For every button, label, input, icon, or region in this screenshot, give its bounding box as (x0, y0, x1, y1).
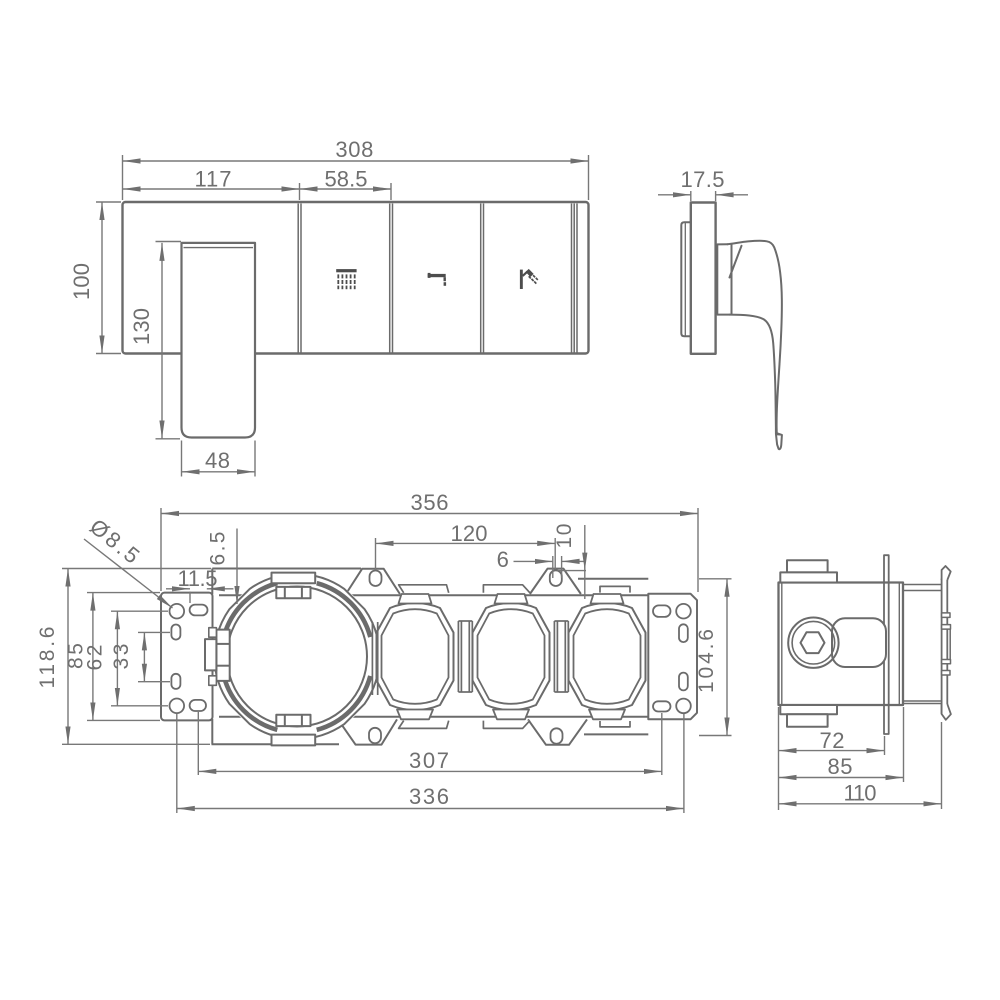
svg-text:336: 336 (409, 784, 449, 809)
svg-text:17.5: 17.5 (681, 167, 725, 192)
svg-text:Ø8.5: Ø8.5 (85, 514, 144, 569)
svg-text:118.6: 118.6 (36, 627, 59, 689)
svg-text:10: 10 (553, 524, 576, 549)
svg-text:11.5: 11.5 (178, 566, 218, 591)
svg-text:356: 356 (411, 490, 449, 515)
svg-text:117: 117 (195, 167, 232, 192)
svg-text:120: 120 (451, 521, 488, 546)
svg-text:6: 6 (497, 547, 509, 572)
svg-text:100: 100 (69, 263, 94, 300)
svg-text:85: 85 (828, 754, 853, 779)
svg-text:6.5: 6.5 (207, 532, 230, 566)
svg-text:104.6: 104.6 (695, 629, 718, 693)
svg-text:308: 308 (335, 137, 373, 162)
svg-text:307: 307 (409, 748, 449, 773)
svg-text:48: 48 (205, 448, 230, 473)
svg-text:130: 130 (129, 308, 154, 345)
svg-text:58.5: 58.5 (325, 167, 368, 192)
svg-text:72: 72 (820, 728, 845, 753)
svg-text:110: 110 (844, 781, 877, 806)
svg-text:33: 33 (110, 644, 133, 670)
